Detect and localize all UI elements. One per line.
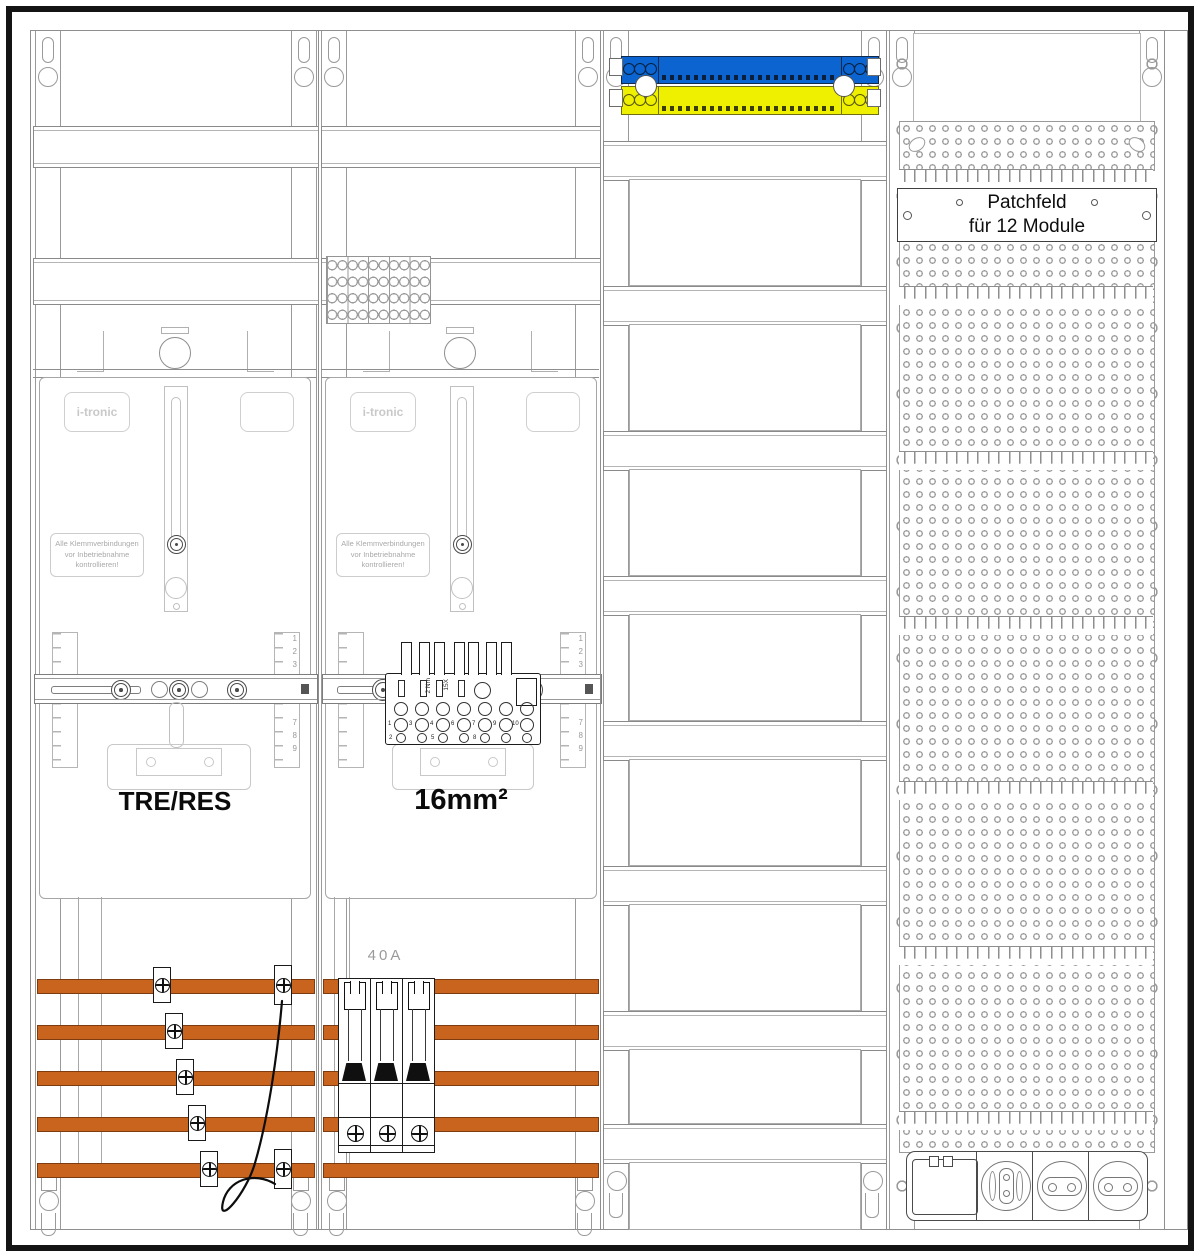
busbar-claw bbox=[376, 982, 398, 1010]
cable-tab bbox=[161, 327, 189, 334]
meter-field-1-column: i-tronic Alle Klemmverbindungen vor Inbe… bbox=[30, 30, 319, 1230]
blank-cover bbox=[913, 33, 1141, 123]
breaker-body bbox=[338, 978, 435, 1153]
module-tab-row bbox=[899, 451, 1153, 470]
module-tab-row bbox=[899, 946, 1153, 965]
din-rail bbox=[321, 126, 601, 168]
meter-cabinet-diagram: i-tronic Alle Klemmverbindungen vor Inbe… bbox=[0, 0, 1200, 1257]
brand-label: i-tronic bbox=[363, 405, 404, 419]
busbar-claw bbox=[408, 982, 430, 1010]
din-rail bbox=[603, 576, 887, 616]
blank-cover bbox=[629, 759, 861, 866]
cable-knockout bbox=[159, 337, 191, 369]
cable-tab bbox=[446, 327, 474, 334]
screw-icon bbox=[453, 535, 472, 554]
perforated-plate bbox=[899, 121, 1155, 171]
blank-cover bbox=[629, 179, 861, 286]
din-rail bbox=[33, 258, 319, 305]
brand-logo: i-tronic bbox=[64, 392, 130, 432]
panel-step bbox=[363, 331, 390, 372]
terminal-clip bbox=[867, 58, 881, 76]
busbar-section-2: 40A bbox=[319, 897, 601, 1229]
terminal-clip bbox=[609, 58, 623, 76]
blank-cover bbox=[629, 324, 861, 431]
meter-panel-2: i-tronic Alle Klemmverbindungen vor Inbe… bbox=[325, 377, 597, 899]
blank-cover bbox=[629, 1162, 861, 1230]
terminal-screw-icon bbox=[379, 1125, 396, 1142]
blank-cover bbox=[629, 469, 861, 576]
main-breaker-40a: 40A bbox=[338, 947, 433, 1157]
terminal-screw-icon bbox=[411, 1125, 428, 1142]
panel-step bbox=[77, 331, 104, 372]
meter-cross-rail bbox=[34, 674, 318, 704]
meter-terminal-block-16mm: 2 Nm 15X 1 3 4 6 7 9 10 bbox=[385, 673, 541, 745]
din-rail bbox=[603, 1011, 887, 1051]
panel-step bbox=[531, 331, 558, 372]
meter-panel-1: i-tronic Alle Klemmverbindungen vor Inbe… bbox=[39, 377, 311, 899]
socket-cell bbox=[976, 1152, 1033, 1220]
field-label-16mm: 16mm² bbox=[326, 784, 596, 817]
screw-icon bbox=[227, 680, 247, 700]
terminal-clip bbox=[609, 89, 623, 107]
terminal-block-grid bbox=[326, 256, 431, 324]
blank-nameplate bbox=[240, 392, 294, 432]
blank-nameplate bbox=[526, 392, 580, 432]
torque-marking: 2 Nm bbox=[426, 678, 433, 694]
busbar-pe bbox=[323, 1163, 599, 1178]
module-tab-row bbox=[899, 1111, 1153, 1130]
distribution-column bbox=[600, 30, 887, 1230]
socket-2pin-icon bbox=[1093, 1161, 1143, 1211]
screw-icon bbox=[169, 680, 189, 700]
din-rail bbox=[603, 866, 887, 906]
din-rail bbox=[603, 286, 887, 326]
brand-logo: i-tronic bbox=[350, 392, 416, 432]
patch-field-column: Patchfeld für 12 Module bbox=[886, 30, 1165, 1230]
din-rail bbox=[603, 1124, 887, 1164]
module-tab-row bbox=[899, 781, 1153, 800]
sealing-plate bbox=[107, 744, 251, 790]
blank-cover bbox=[629, 614, 861, 721]
breaker-rating-label: 40A bbox=[338, 947, 433, 964]
socket-cell bbox=[1032, 1152, 1089, 1220]
socket-type13-icon bbox=[981, 1161, 1031, 1211]
screw-icon bbox=[167, 535, 186, 554]
patch-label-line2: für 12 Module bbox=[969, 215, 1085, 239]
adjustment-slot bbox=[450, 386, 474, 612]
blank-cover bbox=[629, 904, 861, 1011]
terminal-clip bbox=[867, 89, 881, 107]
din-rail bbox=[33, 126, 319, 168]
adjustment-slot bbox=[169, 702, 184, 748]
module-tab-row bbox=[899, 616, 1153, 635]
patch-panel-label-plate: Patchfeld für 12 Module bbox=[897, 188, 1157, 242]
screw-icon bbox=[111, 680, 131, 700]
din-rail bbox=[603, 431, 887, 471]
socket-cell bbox=[1088, 1152, 1146, 1220]
meter-field-2-column: i-tronic Alle Klemmverbindungen vor Inbe… bbox=[318, 30, 601, 1230]
socket-strip bbox=[906, 1151, 1148, 1221]
panel-step bbox=[247, 331, 274, 372]
socket-2pin-icon bbox=[1037, 1161, 1087, 1211]
busbar-section-1 bbox=[31, 897, 319, 1229]
warning-label: Alle Klemmverbindungen vor Inbetriebnahm… bbox=[336, 533, 430, 577]
cable-knockout bbox=[444, 337, 476, 369]
size-marking: 15X bbox=[444, 679, 451, 691]
din-rail bbox=[603, 141, 887, 181]
brand-label: i-tronic bbox=[77, 405, 118, 419]
screw-hole bbox=[833, 75, 855, 97]
terminal-screw-icon bbox=[347, 1125, 364, 1142]
socket-strip-module bbox=[912, 1159, 978, 1215]
patch-label-line1: Patchfeld bbox=[987, 191, 1066, 215]
breaker-toggle bbox=[342, 1063, 366, 1081]
perforated-plate bbox=[899, 240, 1155, 1153]
blank-cover bbox=[629, 1049, 861, 1124]
module-tab-row bbox=[899, 169, 1153, 189]
breaker-toggle bbox=[406, 1063, 430, 1081]
screw-hole bbox=[635, 75, 657, 97]
side-filler-strip bbox=[1164, 30, 1188, 1230]
field-label-tre-res: TRE/RES bbox=[40, 786, 310, 817]
breaker-toggle bbox=[374, 1063, 398, 1081]
module-tab-row bbox=[899, 286, 1153, 305]
din-rail bbox=[603, 721, 887, 761]
adjustment-slot bbox=[164, 386, 188, 612]
busbar-claw bbox=[344, 982, 366, 1010]
jumper-wire bbox=[31, 897, 319, 1229]
warning-label: Alle Klemmverbindungen vor Inbetriebnahm… bbox=[50, 533, 144, 577]
